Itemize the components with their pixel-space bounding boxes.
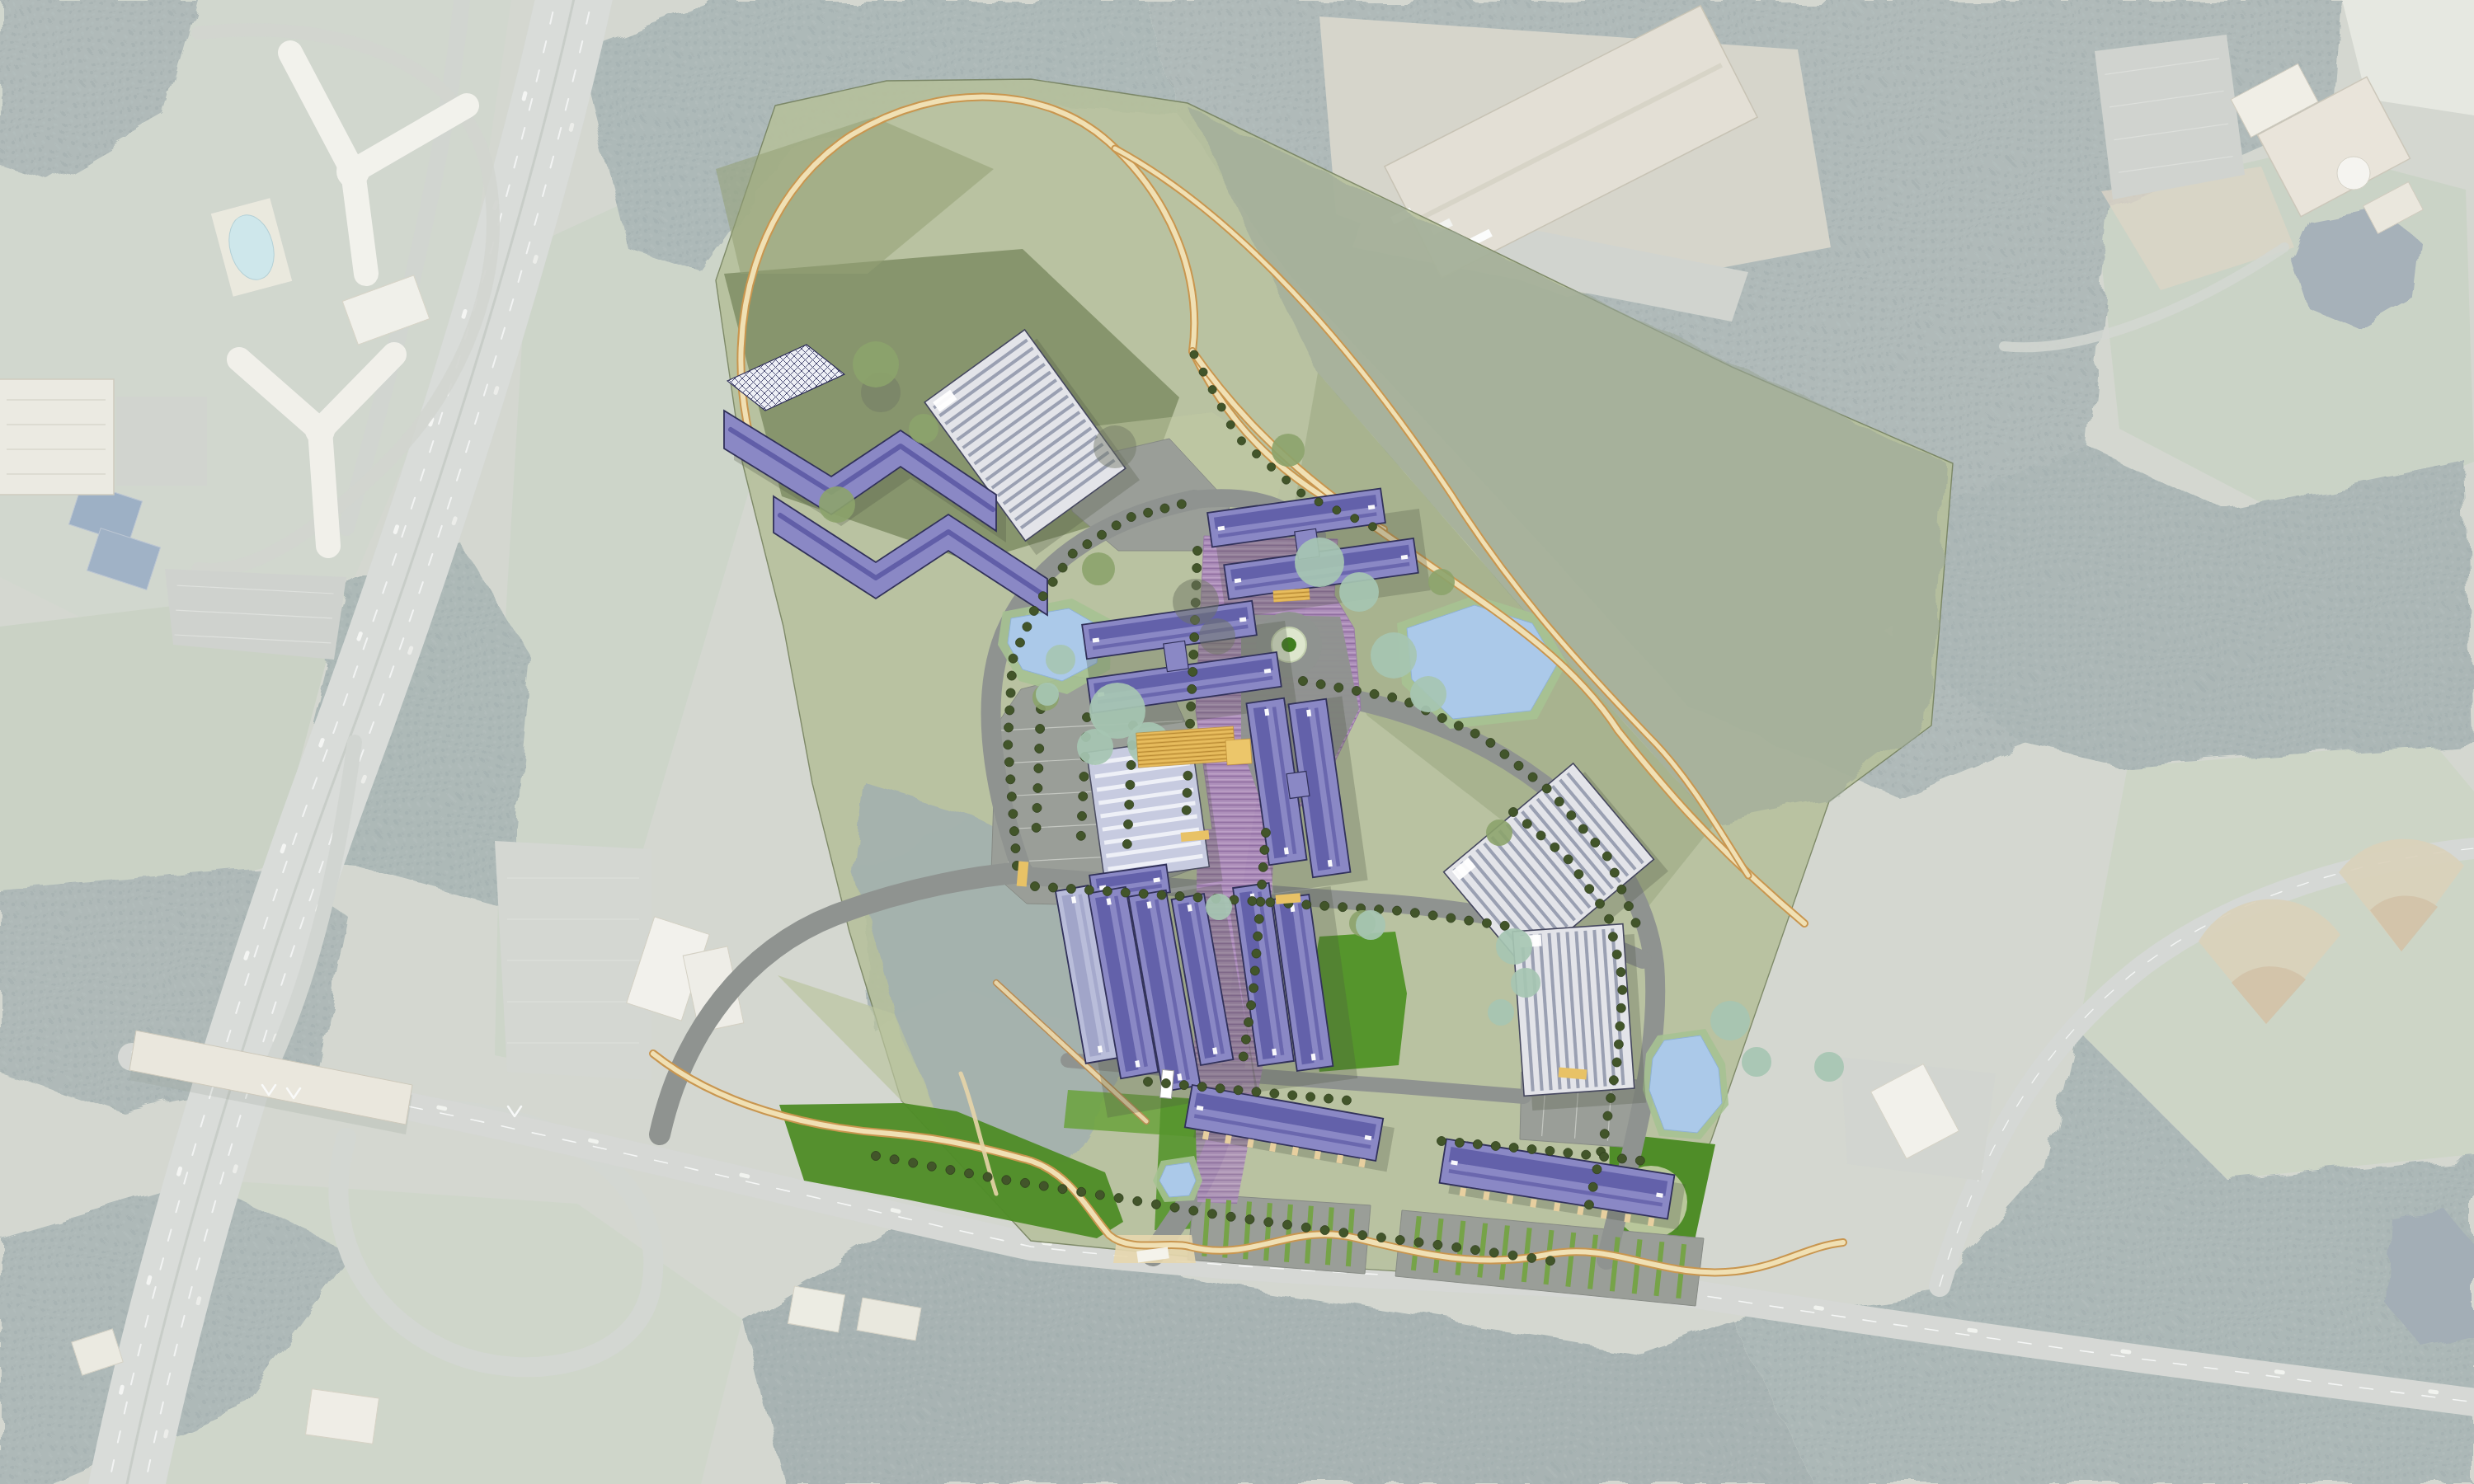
mint-grove-5c: [1488, 999, 1514, 1026]
mint-grove-8: [1814, 1052, 1844, 1082]
amphitheater-steps: [1136, 726, 1236, 768]
tree-shadow-2: [1199, 618, 1235, 655]
mint-grove-5b: [1511, 968, 1540, 998]
sage-tree-3: [909, 414, 938, 444]
mint-grove-2a: [1295, 538, 1344, 587]
aerial-master-plan-map: [0, 0, 2474, 1484]
sage-tree-2: [819, 486, 855, 523]
mint-grove-3a: [1371, 632, 1417, 679]
amphitheater-stage: [1225, 739, 1252, 765]
sage-tree-6: [1272, 434, 1305, 467]
mint-grove-3b: [1410, 676, 1446, 712]
mint-grove-7: [1356, 910, 1385, 940]
mint-grove-2b: [1339, 572, 1379, 612]
mint-grove-6a: [1710, 1001, 1750, 1040]
west-cluster-connector: [1164, 641, 1188, 671]
tree-shadow-3: [1094, 425, 1136, 468]
tree-shadow-1: [1173, 579, 1219, 625]
mint-grove-9: [1206, 894, 1232, 920]
sage-tree-7: [1428, 569, 1455, 595]
mint-grove-4b: [1036, 683, 1059, 706]
mint-grove-5a: [1496, 928, 1532, 965]
viewport: [0, 0, 2474, 1484]
mint-grove-6b: [1742, 1047, 1771, 1077]
sage-tree-8: [1486, 819, 1512, 846]
sage-tree-4: [1082, 552, 1115, 585]
sage-tree-1: [853, 341, 899, 387]
mint-grove-1c: [1077, 729, 1113, 765]
mint-grove-4a: [1046, 645, 1075, 674]
east-cluster-connector: [1286, 771, 1310, 798]
